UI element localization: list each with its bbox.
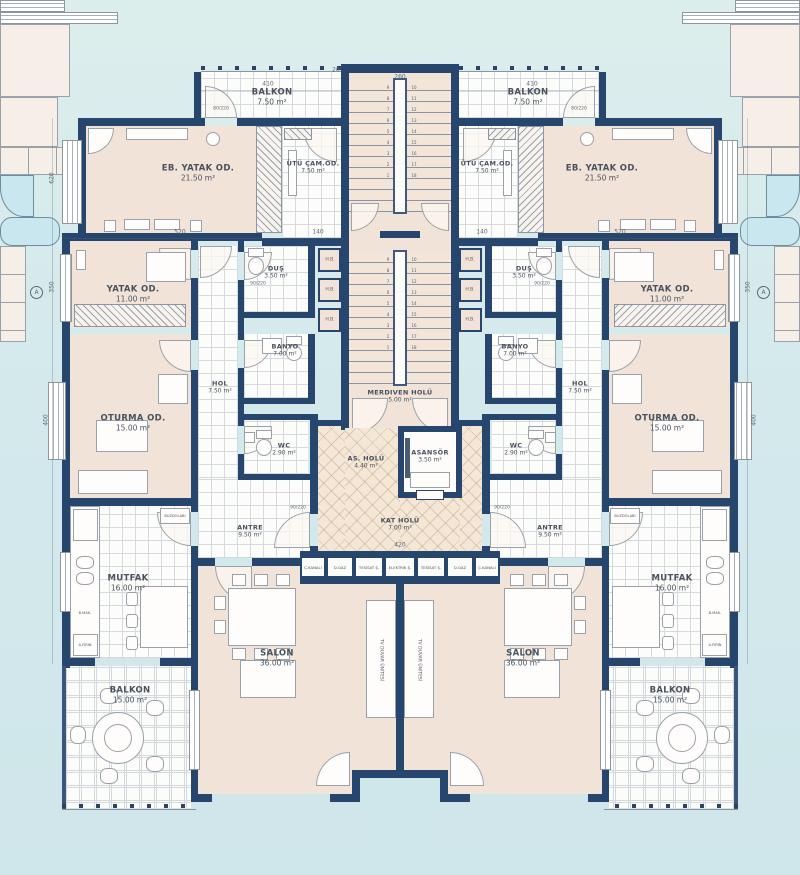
oven-label: A.FIRIN [709, 643, 722, 647]
hb-label: H.B. [325, 258, 334, 263]
dim: 410 [526, 81, 537, 88]
dishwasher-label: B.MAK. [709, 611, 722, 615]
label-salon-left: SALON36.00 m² [260, 649, 294, 668]
label-bath-right: BANYO7.00 m² [502, 343, 529, 358]
dim: 420 [394, 542, 405, 549]
label-elevator-hall: AS. HOLÜ4.40 m² [348, 455, 385, 470]
door-tag: 90/220 [494, 506, 510, 511]
label-hall-left: HOL7.50 m² [208, 380, 232, 395]
dim: 410 [262, 81, 273, 88]
door-tag: 90/220 [290, 506, 306, 511]
dim: 260 [394, 74, 405, 81]
fridge-label: BUZDOLABI [164, 514, 185, 518]
door-tag: 80/220 [571, 107, 587, 112]
dim: 140 [476, 229, 487, 236]
oven-label: A.FIRIN [79, 643, 92, 647]
label-stair-hall: MERDIVEN HOLÜ5.00 m² [368, 389, 433, 404]
label-wc-left: WC2.90 m² [272, 442, 296, 457]
tv-unit-label: TV DUVAR ÜNİTESİ [417, 639, 422, 681]
dim: 620 [49, 172, 56, 183]
hb-label: H.B. [325, 318, 334, 323]
label-salon-right: SALON36.00 m² [506, 649, 540, 668]
dim: 350 [49, 281, 56, 292]
label-balcony-bottom-right: BALKON15.00 m² [650, 686, 691, 705]
label-master-bedroom-left: EB. YATAK OD.21.50 m² [162, 164, 234, 183]
label-floor-hall: KAT HOLÜ7.00 m² [381, 517, 420, 532]
door-tag: 90/220 [534, 282, 550, 287]
label-living-left: OTURMA OD.15.00 m² [101, 414, 166, 433]
floor-plan: 9 8 7 6 5 4 3 2 1 10 11 12 13 14 15 16 1… [0, 0, 800, 875]
dim: 140 [312, 229, 323, 236]
label-entry-right: ANTRE9.50 m² [537, 524, 563, 539]
label-living-right: OTURMA OD.15.00 m² [635, 414, 700, 433]
labels: BALKON7.50 m² EB. YATAK OD.21.50 m² ÜTÜ … [0, 0, 800, 875]
dim: 520 [614, 229, 625, 236]
label-kitchen-left: MUTFAK16.00 m² [108, 574, 149, 593]
hb-label: H.B. [325, 288, 334, 293]
dishwasher-label: B.MAK. [79, 611, 92, 615]
label-bedroom-left: YATAK OD.11.00 m² [107, 285, 160, 304]
label-bedroom-right: YATAK OD.11.00 m² [641, 285, 694, 304]
label-entry-left: ANTRE9.50 m² [237, 524, 263, 539]
label-bath-left: BANYO7.00 m² [272, 343, 299, 358]
label-hall-right: HOL7.50 m² [568, 380, 592, 395]
door-tag: 80/220 [213, 107, 229, 112]
tv-unit-label: TV DUVAR ÜNİTESİ [379, 639, 384, 681]
label-shower-right: DUŞ3.50 m² [512, 265, 536, 280]
hb-label: H.B. [465, 258, 474, 263]
dim: 400 [43, 414, 50, 425]
axis-marker: A [757, 286, 770, 299]
hb-label: H.B. [465, 318, 474, 323]
dim: 400 [751, 414, 758, 425]
dim: 350 [745, 281, 752, 292]
dim: 520 [174, 229, 185, 236]
label-elevator: ASANSÖR3.50 m² [411, 449, 449, 464]
label-master-bedroom-right: EB. YATAK OD.21.50 m² [566, 164, 638, 183]
fridge-label: BUZDOLABI [614, 514, 635, 518]
axis-marker: A [30, 286, 43, 299]
label-balcony-bottom-left: BALKON15.00 m² [110, 686, 151, 705]
label-ironing-right: ÜTÜ ÇAM.OD.7.50 m² [461, 160, 514, 175]
label-kitchen-right: MUTFAK16.00 m² [652, 574, 693, 593]
door-tag: 90/220 [250, 282, 266, 287]
label-wc-right: WC2.90 m² [504, 442, 528, 457]
label-shower-left: DUŞ3.50 m² [264, 265, 288, 280]
dim: 20 [332, 67, 340, 74]
hb-label: H.B. [465, 288, 474, 293]
label-ironing-left: ÜTÜ ÇAM.OD.7.50 m² [287, 160, 340, 175]
